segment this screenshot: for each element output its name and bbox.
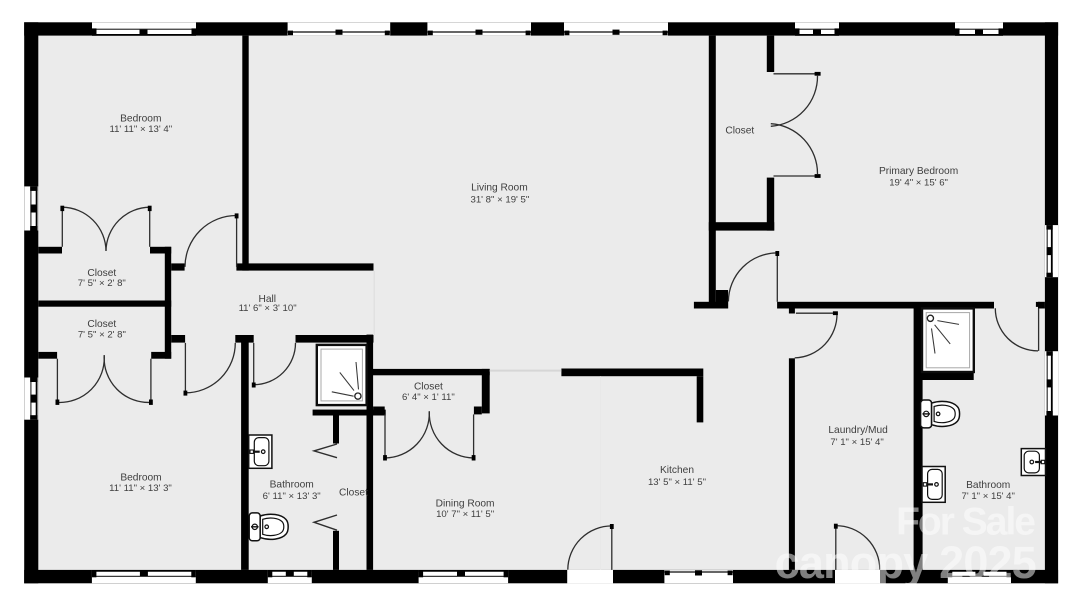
svg-text:Primary Bedroom: Primary Bedroom (879, 166, 958, 177)
svg-text:Closet: Closet (414, 381, 443, 392)
svg-text:7' 1" × 15' 4": 7' 1" × 15' 4" (830, 437, 883, 448)
svg-text:6' 4" × 1' 11": 6' 4" × 1' 11" (402, 392, 455, 403)
svg-text:Kitchen: Kitchen (660, 465, 694, 476)
svg-text:Laundry/Mud: Laundry/Mud (828, 425, 888, 436)
svg-text:19' 4" × 15' 6": 19' 4" × 15' 6" (889, 178, 948, 189)
svg-text:Bathroom: Bathroom (966, 480, 1010, 491)
svg-text:Closet: Closet (87, 319, 116, 330)
svg-text:Bedroom: Bedroom (120, 472, 161, 483)
svg-text:Closet: Closet (339, 488, 368, 499)
svg-text:7' 5" × 2' 8": 7' 5" × 2' 8" (78, 330, 126, 341)
svg-text:Closet: Closet (725, 126, 754, 137)
svg-text:Dining Room: Dining Room (436, 499, 495, 510)
svg-text:Bedroom: Bedroom (120, 114, 161, 125)
svg-text:11' 6" × 3' 10": 11' 6" × 3' 10" (239, 303, 297, 314)
svg-text:Living Room: Living Room (471, 183, 528, 194)
svg-text:11' 11" × 13' 3": 11' 11" × 13' 3" (109, 483, 172, 494)
svg-text:canopy 2025: canopy 2025 (775, 537, 1036, 588)
svg-text:10' 7" × 11' 5": 10' 7" × 11' 5" (436, 509, 494, 520)
svg-text:6' 11" × 13' 3": 6' 11" × 13' 3" (263, 491, 321, 502)
svg-text:Bathroom: Bathroom (270, 480, 314, 491)
svg-text:31' 8" × 19' 5": 31' 8" × 19' 5" (471, 194, 530, 205)
svg-text:7' 5" × 2' 8": 7' 5" × 2' 8" (78, 278, 126, 289)
svg-text:11' 11" × 13' 4": 11' 11" × 13' 4" (109, 124, 172, 135)
svg-text:13' 5" × 11' 5": 13' 5" × 11' 5" (648, 477, 706, 488)
